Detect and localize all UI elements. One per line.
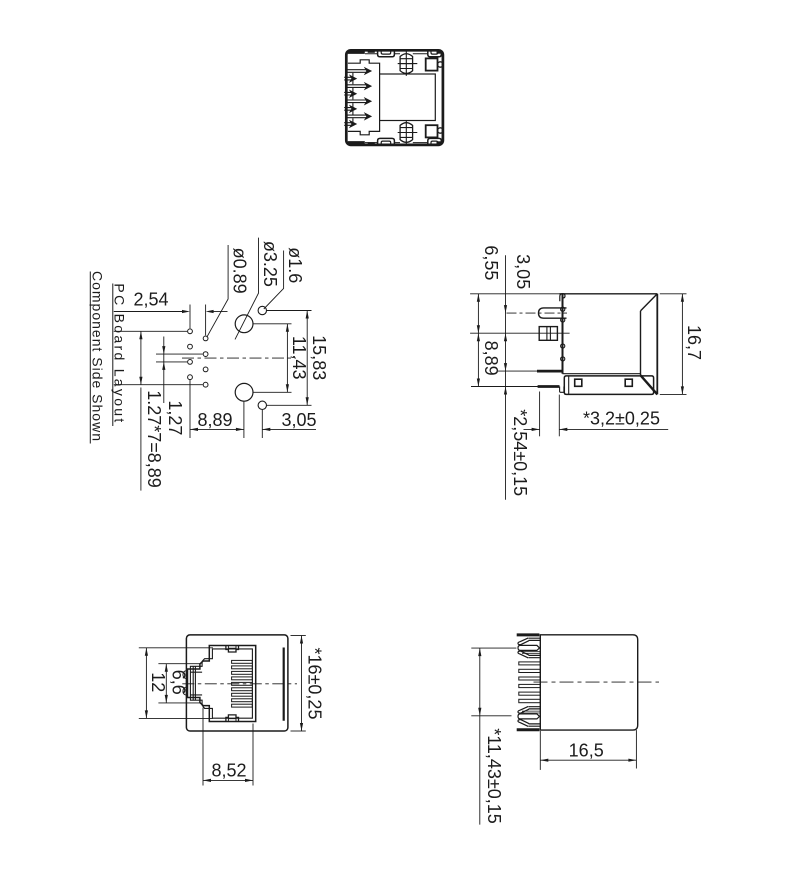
svg-text:8,89: 8,89 — [481, 341, 501, 376]
svg-text:Component Side Shown: Component Side Shown — [89, 271, 105, 442]
svg-text:1,27: 1,27 — [165, 400, 185, 435]
svg-text:ø1.6: ø1.6 — [285, 247, 305, 283]
svg-text:6,55: 6,55 — [481, 245, 501, 280]
svg-text:PC Board Layout: PC Board Layout — [111, 283, 127, 424]
svg-text:1.27*7=8,89: 1.27*7=8,89 — [144, 390, 164, 488]
svg-text:3,05: 3,05 — [281, 410, 316, 430]
svg-text:3,05: 3,05 — [513, 254, 533, 289]
svg-text:16,7: 16,7 — [684, 325, 704, 360]
svg-text:*11,43±0,15: *11,43±0,15 — [484, 728, 504, 824]
svg-text:8,52: 8,52 — [211, 761, 246, 781]
svg-text:11,43: 11,43 — [289, 336, 309, 380]
svg-text:*2,54±0,15: *2,54±0,15 — [510, 409, 530, 496]
svg-text:ø3.25: ø3.25 — [260, 241, 280, 287]
svg-text:*3,2±0,25: *3,2±0,25 — [583, 409, 660, 429]
svg-text:15,83: 15,83 — [309, 335, 329, 380]
svg-text:ø0.89: ø0.89 — [230, 248, 250, 294]
svg-text:16,5: 16,5 — [569, 741, 604, 761]
svg-text:8,89: 8,89 — [197, 410, 232, 430]
svg-text:6,6: 6,6 — [169, 670, 189, 695]
svg-text:2,54: 2,54 — [133, 290, 168, 310]
svg-text:*16±0,25: *16±0,25 — [305, 648, 325, 720]
svg-text:12: 12 — [148, 672, 168, 692]
